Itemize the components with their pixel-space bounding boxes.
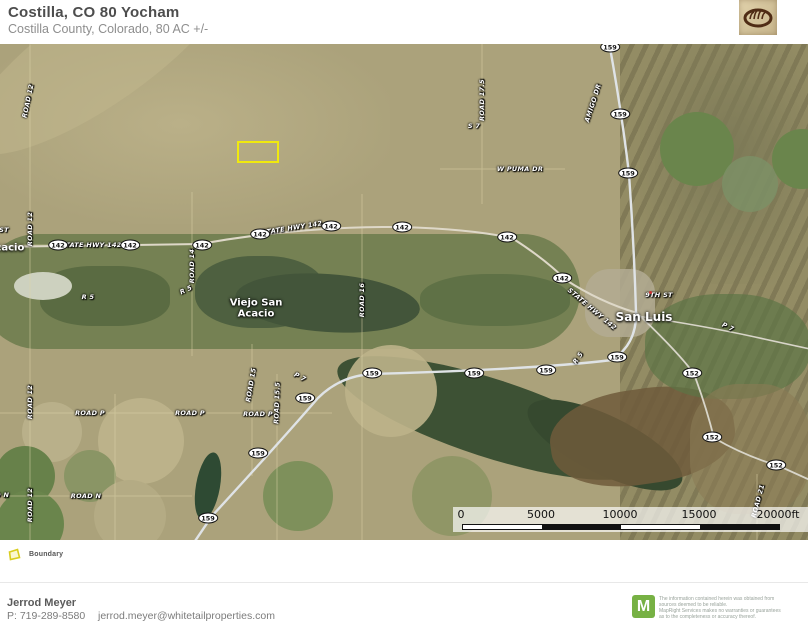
highway-shield-159: 159: [198, 513, 218, 524]
road-label: ROAD 17.5: [478, 79, 486, 121]
highway-shield-142: 142: [321, 221, 341, 232]
highway-shield-142: 142: [192, 240, 212, 251]
road-label: ROAD P: [75, 409, 105, 417]
road-label: ROAD 15.5: [272, 382, 281, 424]
scale-tick: 15000: [682, 508, 717, 521]
highway-shield-159: 159: [618, 168, 638, 179]
boundary-polygon-icon: [7, 548, 21, 561]
header: Costilla, CO 80 Yocham Costilla County, …: [0, 0, 808, 44]
road-network: [0, 44, 808, 540]
satellite-map-canvas[interactable]: 1421421421421421421421421591591591591591…: [0, 44, 808, 540]
highway-shield-159: 159: [464, 368, 484, 379]
road-label: S 7: [468, 122, 480, 130]
highway-shield-152: 152: [702, 432, 722, 443]
road-label: ROAD 14: [188, 249, 196, 283]
highway-shield-152: 152: [766, 460, 786, 471]
highway-shield-159: 159: [607, 352, 627, 363]
place-label: San Luis: [616, 310, 673, 324]
highway-shield-159: 159: [536, 365, 556, 376]
highway-shield-142: 142: [552, 273, 572, 284]
agent-name: Jerrod Meyer: [7, 597, 76, 609]
legend-label: Boundary: [29, 551, 63, 558]
highway-shield-142: 142: [497, 232, 517, 243]
place-label: Acacio: [238, 309, 275, 320]
road-label: ROAD 12: [26, 212, 34, 246]
highway-shield-142: 142: [250, 229, 270, 240]
road-label: STATE HWY 142: [60, 241, 121, 249]
highway-shield-142: 142: [120, 240, 140, 251]
road-label: ST: [0, 226, 9, 234]
scale-tick: 5000: [527, 508, 555, 521]
attribution-disclaimer: The information contained herein was obt…: [659, 596, 807, 620]
highway-shield-159: 159: [362, 368, 382, 379]
highway-shield-159: 159: [248, 448, 268, 459]
scale-tick: 0: [458, 508, 465, 521]
agent-email: jerrod.meyer@whitetailproperties.com: [98, 610, 275, 622]
highway-shield-142: 142: [48, 240, 68, 251]
road-label: ROAD N: [0, 491, 9, 499]
road-label: ROAD 16: [358, 283, 366, 317]
property-boundary[interactable]: [237, 141, 279, 163]
legend: Boundary: [0, 540, 808, 582]
legend-item-boundary: Boundary: [7, 548, 63, 561]
highway-shield-142: 142: [392, 222, 412, 233]
whitetail-properties-logo-icon: [739, 0, 777, 35]
mapright-logo-icon: M: [632, 595, 655, 618]
place-label: Viejo San: [230, 298, 283, 309]
map-report-page: Costilla, CO 80 Yocham Costilla County, …: [0, 0, 808, 625]
highway-shield-159: 159: [610, 109, 630, 120]
road-label: ROAD 12: [26, 488, 34, 522]
road-label: ROAD 12: [26, 385, 34, 419]
place-label: Acacio: [0, 243, 24, 254]
agent-phone: P: 719-289-8580: [7, 610, 85, 622]
scale-tick: 10000: [603, 508, 638, 521]
footer: Jerrod Meyer P: 719-289-8580 jerrod.meye…: [0, 582, 808, 625]
scale-bar-segments: [462, 524, 780, 530]
page-title: Costilla, CO 80 Yocham: [8, 4, 179, 21]
scale-tick: 20000ft: [757, 508, 800, 521]
road-label: ROAD P: [243, 410, 273, 418]
road-label: ROAD P: [175, 409, 205, 417]
highway-shield-152: 152: [682, 368, 702, 379]
highway-shield-159: 159: [295, 393, 315, 404]
road-label: ROAD N: [71, 492, 101, 500]
road-label: W PUMA DR: [497, 165, 543, 173]
scale-bar: 05000100001500020000ft: [453, 507, 808, 532]
attribution-line: as to the completeness or accuracy there…: [659, 614, 807, 620]
page-subtitle: Costilla County, Colorado, 80 AC +/-: [8, 22, 208, 36]
poi-marker-icon: [649, 291, 652, 294]
road-label: R 5: [82, 293, 95, 301]
